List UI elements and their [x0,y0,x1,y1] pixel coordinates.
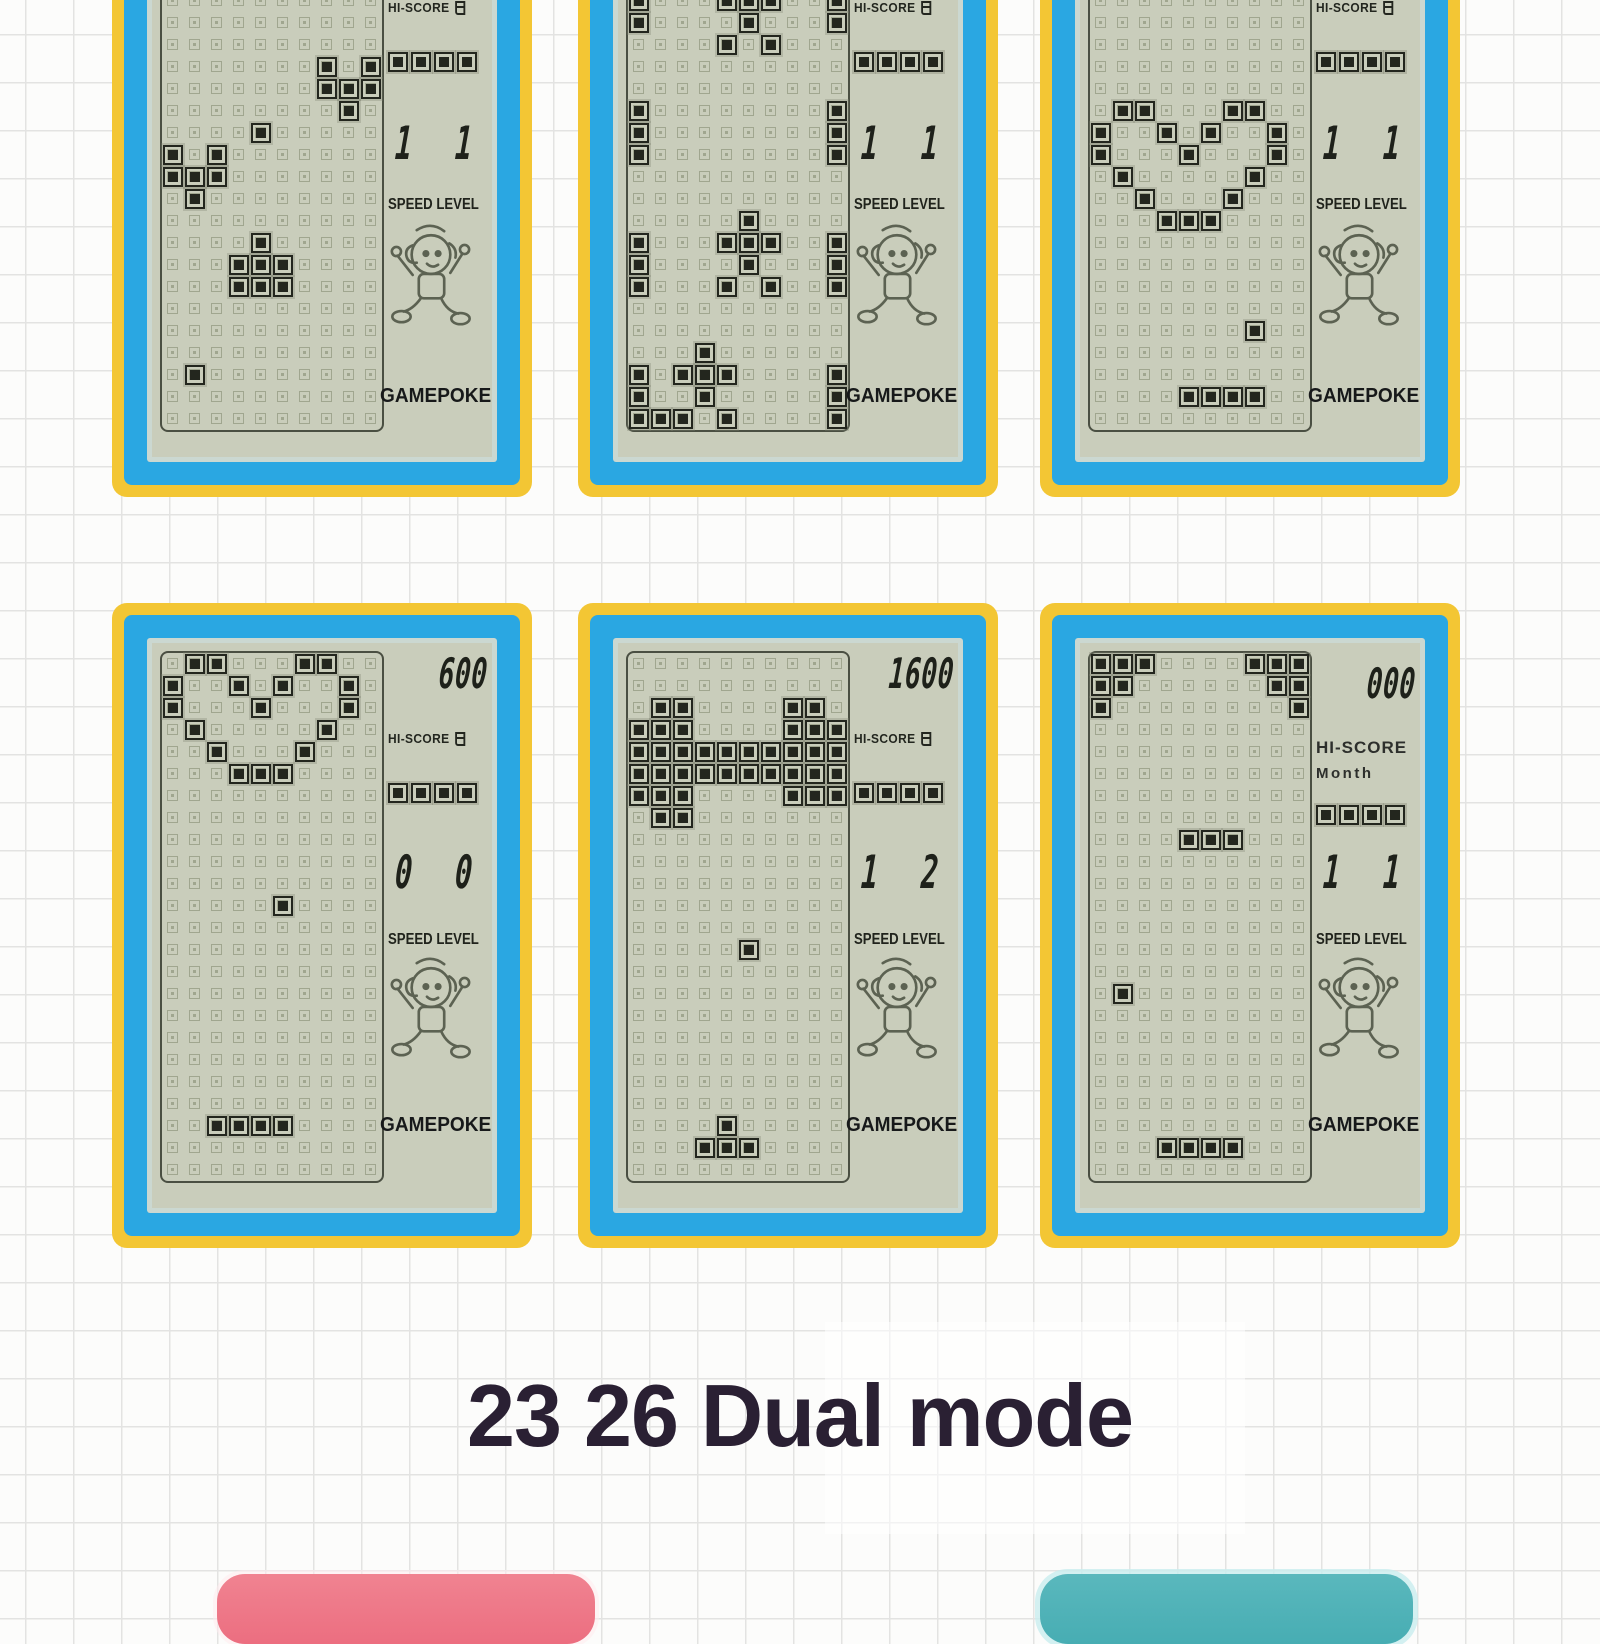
lcd-dot [255,369,266,380]
lcd-dot [1161,812,1172,823]
lcd-block [251,764,271,784]
lcd-dot [255,1054,266,1065]
lcd-dot [1183,193,1194,204]
lcd-dot [1095,856,1106,867]
sidebar: HI-SCORE 11 SPEED LEVEL GAMEPOKE [384,0,490,457]
lcd-dot [1205,259,1216,270]
lcd-dot [1095,325,1106,336]
lcd-dot [233,746,244,757]
lcd-dot [189,105,200,116]
lcd-dot [765,215,776,226]
lcd-dot [255,1098,266,1109]
lcd-dot [1117,237,1128,248]
lcd-dot [321,1010,332,1021]
lcd-block [695,764,715,784]
lcd-dot [277,812,288,823]
lcd-dot [655,61,666,72]
lcd-dot [321,369,332,380]
lcd-dot [299,413,310,424]
lcd-dot [255,1032,266,1043]
lcd-dot [277,1010,288,1021]
lcd-dot [1139,746,1150,757]
next-piece-block [900,783,920,803]
lcd-dot [1227,702,1238,713]
lcd-dot [189,966,200,977]
lcd-dot [189,680,200,691]
lcd-dot [277,1164,288,1175]
lcd-dot [1249,768,1260,779]
lcd-block [695,343,715,363]
lcd-dot [1139,391,1150,402]
lcd-dot [809,1120,820,1131]
lcd-dot [1293,61,1304,72]
lcd-dot [633,1032,644,1043]
lcd-block [761,742,781,762]
lcd-dot [189,988,200,999]
lcd-dot [255,149,266,160]
lcd-dot [721,790,732,801]
lcd-dot [831,325,842,336]
next-piece-block [388,783,408,803]
lcd-dot [299,127,310,138]
lcd-dot [1161,281,1172,292]
lcd-dot [633,61,644,72]
lcd-block [761,0,781,11]
lcd-dot [1139,1164,1150,1175]
lcd-dot [721,834,732,845]
lcd-dot [633,922,644,933]
lcd-dot [1183,17,1194,28]
lcd-dot [743,105,754,116]
lcd-dot [365,1142,376,1153]
lcd-dot [787,281,798,292]
lcd-dot [299,768,310,779]
lcd-dot [299,83,310,94]
lcd-block [629,233,649,253]
brand-label: GAMEPOKE [846,1113,957,1137]
lcd-dot [1227,17,1238,28]
lcd-dot [809,0,820,6]
lcd-dot [1117,900,1128,911]
lcd-dot [809,1098,820,1109]
lcd-dot [211,1010,222,1021]
lcd-dot [655,1164,666,1175]
lcd-dot [743,900,754,911]
lcd-dot [365,1164,376,1175]
lcd-dot [1249,900,1260,911]
lcd-dot [233,171,244,182]
lcd-dot [765,1164,776,1175]
next-piece-block [388,52,408,72]
lcd-dot [321,834,332,845]
lcd-dot [1227,658,1238,669]
lcd-dot [743,369,754,380]
lcd-dot [1095,988,1106,999]
lcd-dot [1293,193,1304,204]
lcd-block [673,742,693,762]
lcd-dot [633,1120,644,1131]
lcd-dot [787,1010,798,1021]
lcd-dot [321,127,332,138]
lcd-dot [721,259,732,270]
lcd-dot [1095,922,1106,933]
lcd-block [805,720,825,740]
lcd-dot [765,988,776,999]
lcd-dot [1095,900,1106,911]
lcd-block [295,742,315,762]
teal-button[interactable] [1040,1574,1413,1644]
lcd-dot [189,0,200,6]
lcd-dot [1293,347,1304,358]
lcd-dot [1249,922,1260,933]
lcd-dot [831,193,842,204]
lcd-dot [299,281,310,292]
lcd-dot [343,369,354,380]
pink-button[interactable] [217,1574,595,1644]
lcd-dot [1183,658,1194,669]
lcd-dot [743,658,754,669]
lcd-dot [699,17,710,28]
game-screen-bottom-right: 000 HI-SCORE Month 11 SPEED LEVEL GAMEPO… [1040,603,1460,1248]
lcd-dot [167,900,178,911]
lcd-dot [1183,237,1194,248]
lcd-dot [743,83,754,94]
lcd-block [695,742,715,762]
month-glyph-icon [455,1,465,15]
lcd-dot [299,680,310,691]
lcd-dot [1249,746,1260,757]
lcd-dot [787,988,798,999]
lcd-dot [211,922,222,933]
lcd-dot [1139,171,1150,182]
lcd-dot [299,193,310,204]
lcd-dot [1117,149,1128,160]
lcd-dot [1161,105,1172,116]
lcd-dot [633,215,644,226]
lcd-dot [365,105,376,116]
lcd-dot [1161,900,1172,911]
lcd-dot [1249,1120,1260,1131]
lcd-dot [699,105,710,116]
lcd-block [1245,167,1265,187]
lcd-dot [787,1032,798,1043]
lcd-dot [233,900,244,911]
lcd-dot [167,1120,178,1131]
lcd-dot [787,812,798,823]
lcd-dot [743,1120,754,1131]
lcd-block [1201,123,1221,143]
lcd-block [761,764,781,784]
lcd-dot [677,680,688,691]
lcd-block [1091,676,1111,696]
lcd-block [1289,698,1309,718]
lcd-dot [277,1032,288,1043]
lcd-dot [189,149,200,160]
mascot [388,220,476,340]
lcd-dot [211,39,222,50]
sidebar: HI-SCORE 11 SPEED LEVEL GAMEPOKE [1312,0,1418,457]
lcd-dot [831,1164,842,1175]
next-piece-block [1385,52,1405,72]
lcd-block [761,277,781,297]
lcd-dot [809,391,820,402]
lcd-dot [721,171,732,182]
lcd-block [163,145,183,165]
lcd-dot [1293,724,1304,735]
lcd-dot [831,1010,842,1021]
lcd-dot [1117,83,1128,94]
lcd-dot [743,325,754,336]
lcd-dot [1249,39,1260,50]
lcd-dot [1095,215,1106,226]
next-piece-block [923,52,943,72]
lcd-block [251,255,271,275]
lcd-dot [1271,369,1282,380]
lcd-dot [1293,856,1304,867]
lcd-dot [809,812,820,823]
lcd-dot [189,1120,200,1131]
lcd-dot [1249,259,1260,270]
lcd-dot [1293,812,1304,823]
lcd-dot [809,878,820,889]
lcd-dot [1293,171,1304,182]
lcd-dot [1183,325,1194,336]
lcd-dot [255,812,266,823]
lcd-block [1267,145,1287,165]
lcd-dot [1205,944,1216,955]
lcd-dot [809,325,820,336]
lcd-block [695,1138,715,1158]
lcd-dot [1227,790,1238,801]
lcd-block [1179,387,1199,407]
lcd-dot [1161,0,1172,6]
lcd-dot [365,325,376,336]
month-glyph-icon [921,1,931,15]
running-boy-icon [388,220,476,340]
brand-label: GAMEPOKE [380,384,491,408]
lcd-dot [255,856,266,867]
lcd-dot [365,413,376,424]
lcd-dot [1227,149,1238,160]
lcd: HI-SCORE 11 SPEED LEVEL GAMEPOKE [618,0,958,457]
lcd-dot [1161,259,1172,270]
lcd-dot [677,325,688,336]
lcd-dot [343,61,354,72]
lcd-dot [1205,325,1216,336]
lcd-dot [1227,325,1238,336]
lcd-block [251,233,271,253]
lcd-dot [233,944,244,955]
lcd-dot [1227,347,1238,358]
lcd-dot [321,237,332,248]
lcd-dot [1139,17,1150,28]
lcd-dot [1161,1010,1172,1021]
lcd-dot [167,61,178,72]
lcd-block [229,277,249,297]
lcd-dot [721,812,732,823]
lcd-dot [1205,900,1216,911]
lcd-dot [1293,0,1304,6]
lcd-dot [299,1142,310,1153]
lcd-dot [321,259,332,270]
lcd-dot [1183,83,1194,94]
lcd-dot [1161,1032,1172,1043]
lcd-dot [633,1098,644,1109]
lcd-block [805,698,825,718]
lcd-dot [1249,149,1260,160]
lcd-dot [655,303,666,314]
lcd-block [207,742,227,762]
lcd-block [1201,830,1221,850]
lcd-dot [743,391,754,402]
lcd-dot [189,856,200,867]
lcd-block [1157,211,1177,231]
lcd-dot [765,724,776,735]
lcd-dot [699,988,710,999]
lcd-dot [1293,966,1304,977]
lcd-block [717,764,737,784]
lcd-dot [255,17,266,28]
lcd-dot [321,391,332,402]
lcd-dot [343,988,354,999]
lcd-block [1245,101,1265,121]
lcd-dot [787,215,798,226]
lcd-dot [655,1142,666,1153]
lcd-dot [765,834,776,845]
lcd-dot [233,1076,244,1087]
lcd-dot [255,1076,266,1087]
lcd-dot [677,215,688,226]
lcd-block [1201,1138,1221,1158]
lcd-dot [255,413,266,424]
lcd-dot [365,215,376,226]
lcd-dot [277,878,288,889]
lcd-block [1245,321,1265,341]
lcd-dot [1205,702,1216,713]
lcd-dot [765,17,776,28]
lcd-dot [343,303,354,314]
lcd-dot [655,17,666,28]
lcd-dot [299,347,310,358]
lcd-dot [277,724,288,735]
lcd-dot [1271,171,1282,182]
lcd-dot [1139,702,1150,713]
lcd-dot [321,105,332,116]
lcd-dot [633,1054,644,1065]
lcd-dot [1271,193,1282,204]
game-screen-top-right: HI-SCORE 11 SPEED LEVEL GAMEPOKE [1040,0,1460,497]
lcd-dot [633,702,644,713]
lcd-dot [167,369,178,380]
lcd-dot [1139,768,1150,779]
lcd-block [739,940,759,960]
lcd-dot [255,834,266,845]
lcd-dot [743,834,754,845]
lcd-dot [299,1098,310,1109]
lcd-dot [321,680,332,691]
lcd-dot [1139,303,1150,314]
lcd-dot [1271,746,1282,757]
lcd-dot [1095,61,1106,72]
lcd-dot [743,922,754,933]
lcd-dot [809,922,820,933]
lcd-dot [633,966,644,977]
lcd-dot [633,1142,644,1153]
lcd-dot [1293,105,1304,116]
lcd-block [273,277,293,297]
lcd-dot [633,303,644,314]
lcd-dot [1139,680,1150,691]
lcd-dot [233,215,244,226]
lcd-block [361,57,381,77]
lcd-dot [1117,1164,1128,1175]
lcd-dot [677,17,688,28]
lcd-dot [1271,1076,1282,1087]
lcd-dot [277,347,288,358]
lcd-dot [743,790,754,801]
lcd-dot [787,900,798,911]
lcd-dot [633,83,644,94]
lcd-dot [633,325,644,336]
lcd-dot [699,237,710,248]
lcd-block [827,720,847,740]
running-boy-icon [1316,220,1404,340]
lcd-dot [211,812,222,823]
lcd-dot [211,17,222,28]
lcd-dot [211,1076,222,1087]
next-piece-block [1362,805,1382,825]
mascot [1316,953,1404,1073]
lcd-dot [189,1164,200,1175]
lcd-dot [211,768,222,779]
month-glyph-icon [921,732,931,746]
lcd-block [251,277,271,297]
lcd-dot [365,127,376,138]
lcd-dot [1139,369,1150,380]
lcd-block [629,365,649,385]
lcd-block [827,277,847,297]
lcd-dot [1293,369,1304,380]
lcd-dot [1271,1032,1282,1043]
lcd-dot [299,1010,310,1021]
next-piece-block [1339,52,1359,72]
lcd-dot [189,1076,200,1087]
lcd-dot [1161,1120,1172,1131]
lcd-dot [321,1164,332,1175]
lcd-dot [1161,369,1172,380]
lcd-dot [1095,105,1106,116]
lcd-dot [677,127,688,138]
lcd-dot [677,966,688,977]
lcd-dot [1249,1032,1260,1043]
lcd-block [339,101,359,121]
lcd-dot [343,790,354,801]
lcd-dot [343,127,354,138]
lcd-dot [211,281,222,292]
lcd-dot [321,215,332,226]
lcd-dot [255,1010,266,1021]
speed-level-label: SPEED LEVEL [388,931,479,949]
lcd-dot [365,944,376,955]
lcd-dot [1117,281,1128,292]
lcd-dot [1205,171,1216,182]
lcd-dot [699,966,710,977]
lcd-block [827,409,847,429]
lcd-dot [1227,413,1238,424]
lcd-dot [765,702,776,713]
playfield [160,651,384,1183]
lcd-dot [1271,0,1282,6]
